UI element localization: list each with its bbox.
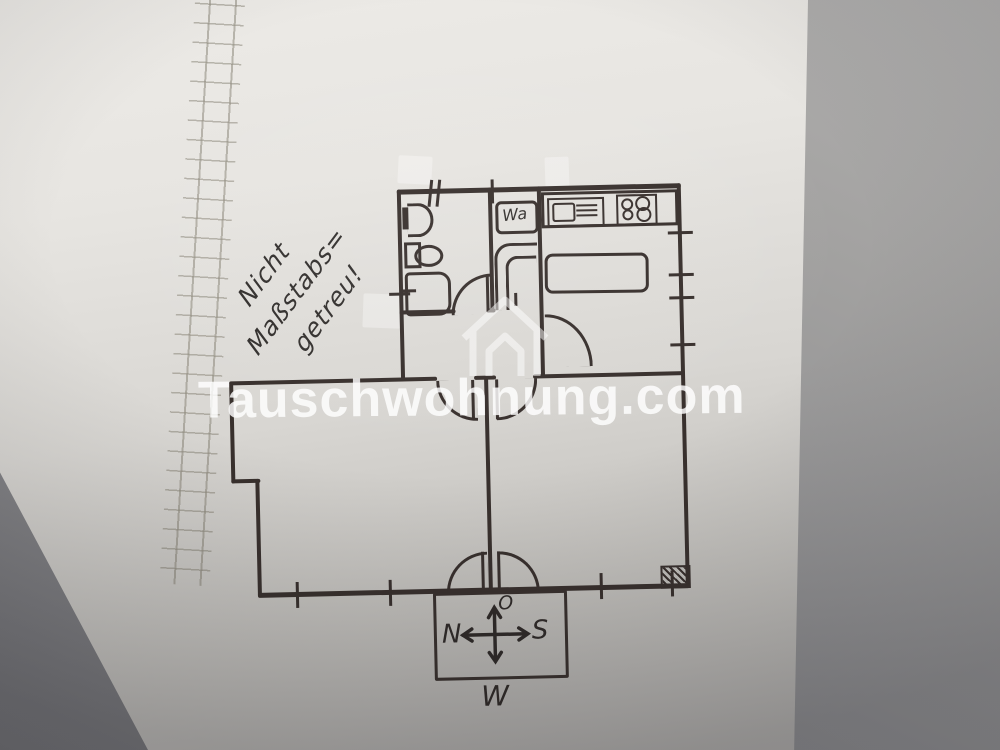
- window-tick: [600, 573, 604, 599]
- bathtub-faucet-icon: [402, 289, 416, 292]
- compass-label-north: N: [442, 619, 462, 649]
- floorplan-photo: Wa: [0, 0, 1000, 750]
- window-tick: [491, 179, 495, 203]
- window-tick: [669, 296, 694, 300]
- compass-label-west: W: [481, 679, 509, 713]
- watermark-text: Tauschwohnung.com: [198, 365, 799, 430]
- washer-label: Wa: [501, 204, 528, 226]
- washer-box: Wa: [495, 200, 539, 234]
- kitchen-sink-bowl-icon: [552, 203, 575, 223]
- shaft-hatch-icon: [660, 565, 691, 589]
- wall-left-lower-b: [255, 479, 262, 597]
- compass-label-east: O: [498, 592, 513, 614]
- window-tick: [436, 180, 442, 207]
- kitchen-table: [544, 252, 648, 293]
- bathtub-icon: [405, 271, 452, 316]
- watermark-house-icon: [458, 288, 552, 378]
- compass-label-south: S: [531, 615, 548, 645]
- window-tick: [670, 343, 695, 347]
- compass-box: O N S: [433, 590, 569, 681]
- window-tick: [296, 582, 300, 608]
- handwritten-note: Nicht Maßstabs= getreu!: [212, 154, 413, 389]
- sink-icon: [414, 245, 443, 268]
- window-tick: [389, 580, 393, 606]
- toilet-bowl-icon: [407, 203, 434, 238]
- window-tick: [669, 273, 694, 277]
- window-tick: [668, 231, 693, 235]
- balcony-door-arc-left: [446, 552, 488, 594]
- window-tick: [428, 180, 434, 207]
- balcony-door-arc-right: [498, 550, 540, 592]
